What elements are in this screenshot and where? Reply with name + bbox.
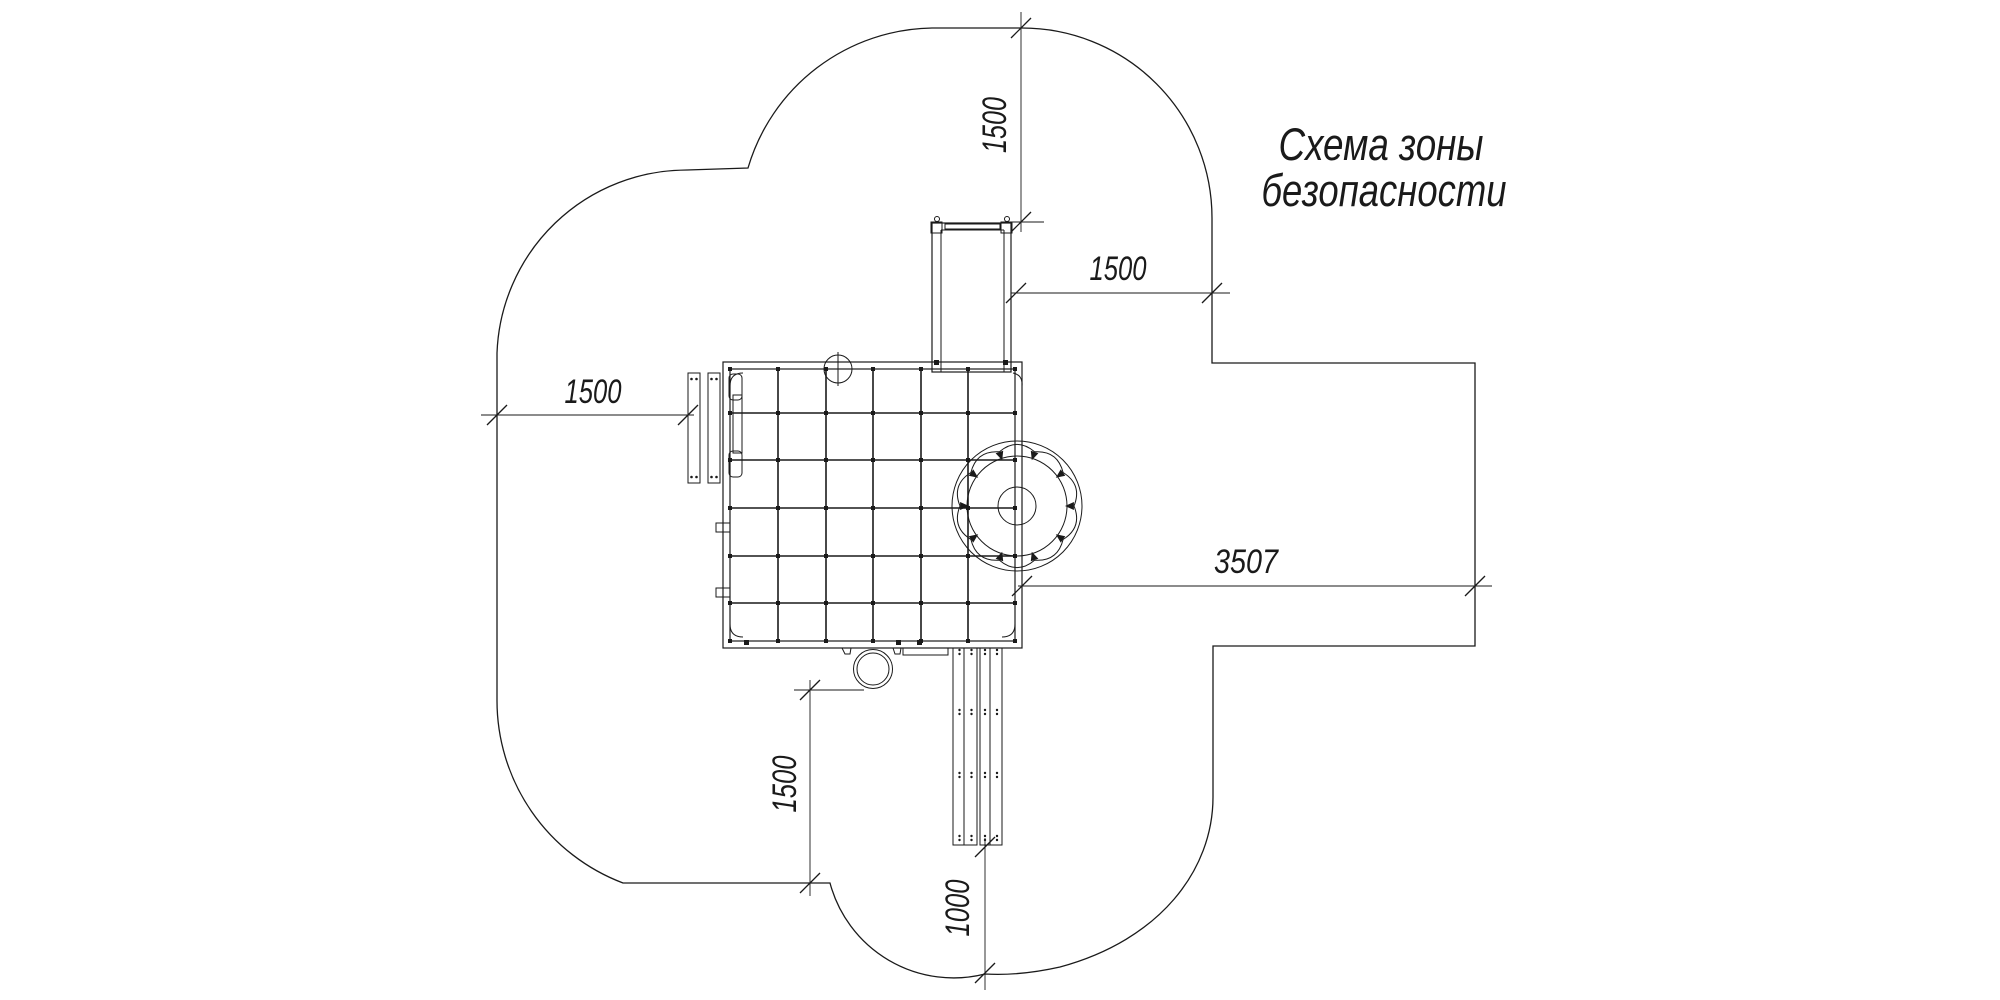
net-grid-knot: [824, 554, 828, 558]
bench-screw: [715, 378, 718, 381]
ramp-ladder: [953, 648, 1002, 845]
dimension-label: 1500: [766, 755, 804, 812]
dimension-label: 3507: [1214, 543, 1279, 581]
ramp-plank: [953, 648, 977, 845]
slide-petal: [1063, 473, 1077, 507]
safety-zone-plan-drawing: 1500 1500 1500 3507 1500 1000 Схема зоны…: [0, 0, 2000, 1000]
bench-slat: [708, 373, 720, 483]
tower-extension: [931, 217, 1012, 373]
ramp-screw: [996, 649, 998, 651]
drawing-title-line1: Схема зоны: [1279, 119, 1484, 170]
dim-right-1500: 1500: [1011, 250, 1230, 293]
net-grid-knot: [919, 601, 923, 605]
net-grid-knot: [919, 458, 923, 462]
play-structure: [688, 217, 1082, 846]
net-grid-knot: [919, 411, 923, 415]
net-grid-knot: [728, 554, 732, 558]
bench-screw: [710, 378, 713, 381]
bench-bracket-bottom: [729, 451, 742, 477]
slide-petal-cusp: [969, 469, 979, 477]
net-grid-knot: [871, 458, 875, 462]
ramp-screw: [984, 649, 986, 651]
slide-petal: [957, 506, 971, 540]
platform-corner-bracket: [1013, 373, 1022, 386]
drum-bell: [842, 648, 901, 689]
bench-screws: [690, 378, 718, 479]
net-grid-knot: [966, 639, 970, 643]
slide-petal: [1063, 506, 1077, 540]
net-grid-knot: [966, 411, 970, 415]
dimension-label: 1500: [565, 373, 622, 411]
dim-bottom-1500: 1500: [766, 680, 864, 896]
net-grid-knot: [966, 601, 970, 605]
slide-petal: [1035, 540, 1064, 561]
dim-bottom-1000: 1000: [939, 838, 985, 990]
tower-post: [931, 222, 942, 233]
ramp-screw: [996, 839, 998, 841]
net-grid-knot: [824, 601, 828, 605]
net-grid-knot: [824, 411, 828, 415]
net-grid-knot: [728, 411, 732, 415]
ramp-screw: [984, 713, 986, 715]
ramp-screw: [970, 649, 972, 651]
drum-inner: [857, 653, 889, 685]
tower-post-cap: [935, 217, 940, 222]
bench-bracket-top: [729, 374, 742, 400]
net-grid-knot: [1013, 506, 1017, 510]
slide-petal: [971, 452, 1000, 473]
deck-foot: [744, 640, 749, 645]
bench-screw: [695, 476, 698, 479]
ramp-screw: [958, 772, 960, 774]
net-grid-knot: [966, 554, 970, 558]
ramp-screw: [970, 772, 972, 774]
ramp-screw: [958, 839, 960, 841]
tower-base-dot: [1003, 360, 1008, 365]
net-grid-knot: [871, 554, 875, 558]
bench-slat: [688, 373, 700, 483]
ramp-screw: [958, 653, 960, 655]
net-grid-knot: [776, 639, 780, 643]
tower-base-dot: [934, 360, 939, 365]
drum-outer: [854, 650, 893, 689]
tower-post-cap: [1005, 217, 1010, 222]
net-grid-knot: [871, 411, 875, 415]
slide-petal: [957, 473, 971, 507]
slide-petal-cusp: [1056, 469, 1066, 477]
drum-mount: [842, 648, 851, 654]
net-grid-knot: [728, 639, 732, 643]
net-grid-knot: [776, 367, 780, 371]
ramp-screw: [984, 709, 986, 711]
ramp-screw: [970, 709, 972, 711]
dim-left-1500: 1500: [481, 373, 694, 415]
net-grid-knot: [919, 554, 923, 558]
ramp-screw: [958, 649, 960, 651]
net-grid-knot: [871, 367, 875, 371]
ramp-screw: [958, 713, 960, 715]
net-grid-knot: [728, 367, 732, 371]
dim-3507: 3507: [1018, 543, 1492, 586]
bench-screw: [690, 476, 693, 479]
ramp-screw: [958, 709, 960, 711]
net-grid-knot: [776, 601, 780, 605]
deck-foot: [896, 640, 901, 645]
ramp-screw: [970, 653, 972, 655]
ramp-screw: [996, 772, 998, 774]
net-grid-knot: [871, 506, 875, 510]
ramp-screw: [996, 713, 998, 715]
drum-mount: [893, 648, 901, 654]
slide-petal-cusp: [1065, 502, 1074, 510]
bench-screw: [695, 378, 698, 381]
dimension-label: 1500: [976, 97, 1014, 153]
ramp-screw: [996, 776, 998, 778]
dimension-label: 1000: [939, 879, 977, 936]
slide-petal-cusp: [1056, 534, 1066, 542]
net-grid-knot: [1013, 639, 1017, 643]
bench-screw: [690, 378, 693, 381]
net-grid-knot: [728, 506, 732, 510]
slide-petal: [971, 540, 1000, 561]
net-grid-knot: [871, 601, 875, 605]
ramp-screw: [958, 776, 960, 778]
tower-post: [1001, 222, 1012, 233]
net-grid-knot: [966, 367, 970, 371]
net-grid-knot: [824, 506, 828, 510]
net-grid-knot: [824, 458, 828, 462]
net-grid-knot: [919, 639, 923, 643]
net-grid-knot: [919, 367, 923, 371]
bench-left: [688, 373, 742, 483]
ramp-screw: [970, 835, 972, 837]
net-grid-knot: [776, 554, 780, 558]
net-grid-knot: [776, 411, 780, 415]
dimension-label: 1500: [1090, 250, 1147, 288]
drawing-canvas: 1500 1500 1500 3507 1500 1000 Схема зоны…: [0, 0, 2000, 1000]
bench-screw: [715, 476, 718, 479]
tower-outer-wall: [932, 223, 1011, 372]
bench-panel: [733, 395, 742, 453]
slide-petal: [999, 560, 1034, 567]
ramp-screw: [996, 653, 998, 655]
drawing-title: Схема зоны безопасности: [1262, 119, 1507, 216]
net-grid-knot: [776, 506, 780, 510]
slide-petal: [999, 444, 1034, 451]
ramp-screw: [984, 653, 986, 655]
net-grid-knot: [871, 639, 875, 643]
net-grid-knot: [1013, 458, 1017, 462]
ramp-screw: [970, 776, 972, 778]
net-grid-knot: [1013, 367, 1017, 371]
net-grid-knot: [1013, 411, 1017, 415]
ramp-screw: [984, 776, 986, 778]
bench-screw: [710, 476, 713, 479]
net-grid-knot: [919, 506, 923, 510]
ramp-screw: [996, 709, 998, 711]
deck-bottom-bracket: [903, 648, 948, 655]
platform-corner-bracket: [1002, 624, 1015, 637]
ramp-screw: [970, 713, 972, 715]
ramp-plank: [980, 648, 1002, 845]
net-grid-knot: [1013, 601, 1017, 605]
tower-top-rail: [945, 224, 1000, 229]
ramp-screw: [970, 839, 972, 841]
net-grid-knot: [728, 601, 732, 605]
net-grid-knot: [776, 458, 780, 462]
ramp-screw: [984, 772, 986, 774]
drawing-title-line2: безопасности: [1262, 165, 1507, 216]
net-grid-knot: [824, 639, 828, 643]
ramp-screw: [958, 835, 960, 837]
ramp-screw: [984, 835, 986, 837]
platform-corner-bracket: [730, 624, 743, 637]
dim-top-1500: 1500: [976, 12, 1044, 232]
slide-petal-cusp: [969, 534, 979, 542]
ramp-screw: [996, 835, 998, 837]
slide-petal: [1035, 452, 1064, 473]
platform-net-grid: [728, 367, 1017, 643]
